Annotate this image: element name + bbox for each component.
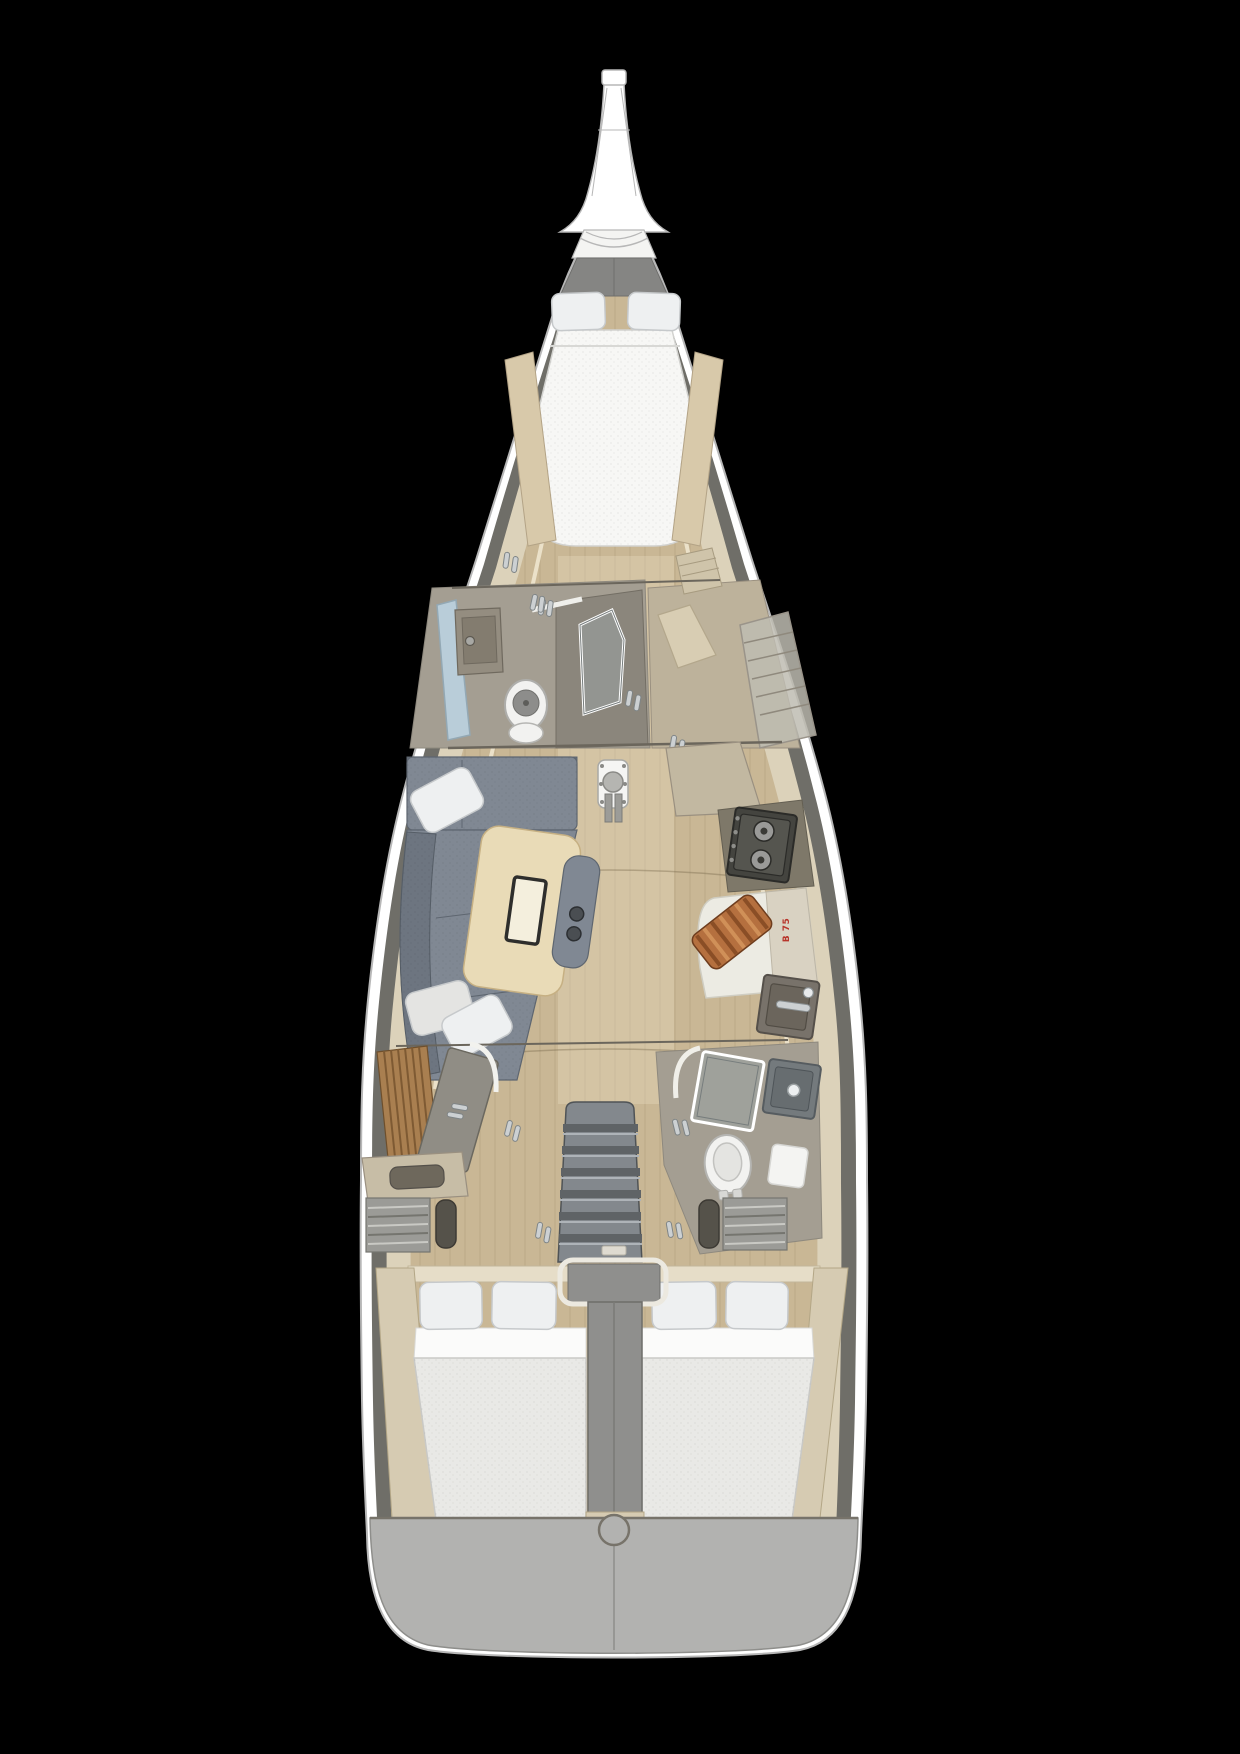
mast-bracket xyxy=(605,794,612,822)
rudder-post xyxy=(599,1515,629,1545)
bowsprit-tip xyxy=(602,70,626,85)
floor-plan-canvas: B 75 xyxy=(0,0,1240,1754)
yacht-floor-plan: B 75 xyxy=(0,0,1240,1754)
bed-sheet xyxy=(414,1328,586,1360)
vberth-pillow-starboard xyxy=(627,292,680,331)
fwd-head-faucet xyxy=(466,637,475,646)
fwd-shower xyxy=(556,590,648,748)
toilet-hinge xyxy=(732,1189,742,1199)
headboard-band xyxy=(642,1266,820,1282)
fwd-head-vanity xyxy=(455,608,503,675)
column-step xyxy=(602,1246,626,1255)
vent-slot xyxy=(699,1200,719,1248)
galley-faucet-knob xyxy=(803,987,814,998)
fwd-head-toilet xyxy=(505,680,547,743)
vent-locker-starboard xyxy=(699,1198,787,1250)
aft-cabin-port xyxy=(376,1266,586,1520)
aft-cabin-starboard xyxy=(642,1266,848,1520)
mattress-texture xyxy=(414,1358,586,1520)
aft-shower-glass xyxy=(691,1051,764,1131)
mattress-texture xyxy=(642,1358,814,1520)
vberth-pillow-port xyxy=(551,292,605,331)
galley-counter-label: B 75 xyxy=(782,918,792,943)
transom xyxy=(370,1515,858,1653)
forward-head xyxy=(410,580,650,748)
aft-head-sink xyxy=(762,1059,821,1120)
galley-sink xyxy=(756,974,820,1039)
stove xyxy=(727,807,798,883)
bed-pillow xyxy=(726,1281,789,1329)
aft-head-faucet xyxy=(787,1083,801,1097)
bed-pillow xyxy=(652,1281,717,1329)
vent-slot xyxy=(436,1200,456,1248)
port-vanity-tray xyxy=(389,1165,444,1190)
bow-deck-platform xyxy=(572,230,656,258)
column-body xyxy=(588,1302,642,1514)
mast-bracket xyxy=(615,794,622,822)
fwd-shower-glass xyxy=(580,610,624,714)
mast-ball xyxy=(603,772,623,792)
bed-pillow xyxy=(492,1281,557,1329)
bowsprit xyxy=(560,70,668,296)
aft-head-mat xyxy=(767,1144,808,1189)
bed-pillow xyxy=(420,1281,483,1329)
table-leaf-slot xyxy=(506,877,547,945)
forward-cabin xyxy=(505,292,723,546)
vent-locker-port xyxy=(366,1198,456,1252)
bowsprit-body xyxy=(560,84,668,232)
bed-sheet xyxy=(642,1328,814,1360)
